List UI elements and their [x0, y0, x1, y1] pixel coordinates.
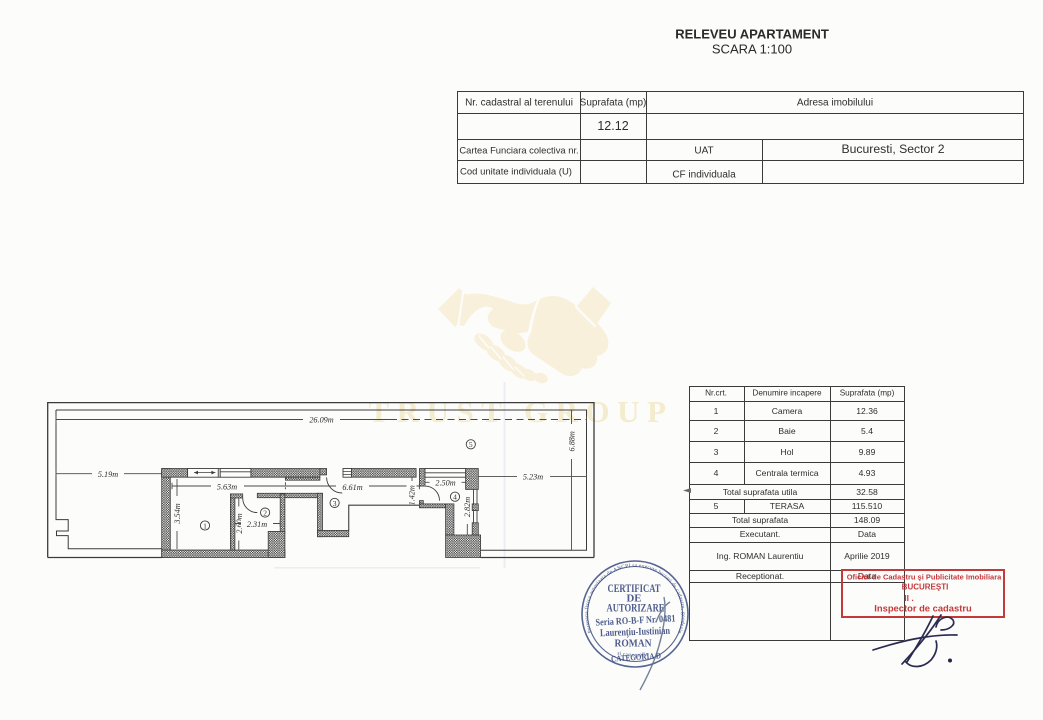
svg-text:AUTORIZARE: AUTORIZARE	[607, 603, 665, 615]
svg-text:ROMAN: ROMAN	[615, 638, 652, 650]
svg-text:Persoana fizica autorizata de: Persoana fizica autorizata de ANCPI sa e…	[0, 0, 686, 636]
